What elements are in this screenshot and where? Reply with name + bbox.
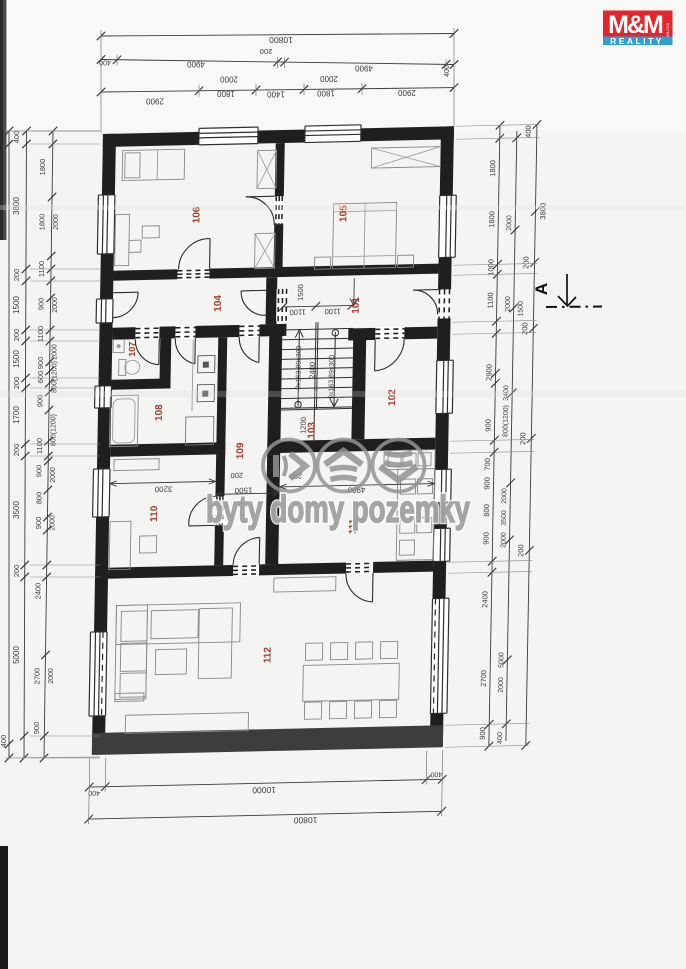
svg-text:1400: 1400 xyxy=(267,90,285,99)
svg-text:4900: 4900 xyxy=(187,60,205,69)
svg-text:1000: 1000 xyxy=(486,259,495,276)
svg-text:900: 900 xyxy=(32,722,41,735)
svg-text:1100: 1100 xyxy=(486,292,495,308)
svg-text:1500: 1500 xyxy=(296,284,305,301)
svg-text:200: 200 xyxy=(12,444,21,457)
svg-text:800: 800 xyxy=(34,492,43,505)
svg-text:M&M: M&M xyxy=(608,11,663,39)
svg-text:3500: 3500 xyxy=(501,510,508,526)
svg-text:2000: 2000 xyxy=(498,677,505,693)
svg-text:200: 200 xyxy=(516,544,525,557)
svg-text:3500: 3500 xyxy=(12,501,21,519)
svg-text:200: 200 xyxy=(518,432,527,445)
svg-text:1800: 1800 xyxy=(488,160,497,177)
svg-text:5000: 5000 xyxy=(12,646,21,664)
svg-text:1100: 1100 xyxy=(325,307,341,316)
svg-text:108: 108 xyxy=(154,404,165,421)
svg-text:900: 900 xyxy=(34,517,43,530)
svg-text:900: 900 xyxy=(36,357,45,370)
svg-text:2400: 2400 xyxy=(308,362,317,379)
svg-text:2000: 2000 xyxy=(52,297,59,313)
svg-text:900: 900 xyxy=(481,532,490,545)
svg-text:400: 400 xyxy=(430,770,442,777)
svg-text:400: 400 xyxy=(524,125,533,138)
svg-text:110: 110 xyxy=(149,505,160,522)
svg-text:400: 400 xyxy=(12,131,21,144)
svg-text:600: 600 xyxy=(36,371,45,384)
svg-text:200: 200 xyxy=(520,322,529,335)
svg-text:REALITY: REALITY xyxy=(610,36,664,46)
svg-text:400: 400 xyxy=(444,65,451,77)
svg-text:400: 400 xyxy=(0,735,8,748)
svg-text:800(1200): 800(1200) xyxy=(502,405,510,437)
svg-text:900: 900 xyxy=(483,419,492,432)
svg-text:200: 200 xyxy=(12,565,21,578)
svg-text:3200: 3200 xyxy=(154,484,173,493)
svg-text:2000: 2000 xyxy=(500,532,507,548)
svg-text:112: 112 xyxy=(262,647,273,664)
svg-text:2000: 2000 xyxy=(320,74,338,83)
svg-text:2900: 2900 xyxy=(398,88,416,97)
svg-text:104: 104 xyxy=(213,294,224,311)
svg-text:9x163,89x300: 9x163,89x300 xyxy=(295,345,303,389)
svg-text:700: 700 xyxy=(483,458,492,471)
svg-text:900: 900 xyxy=(482,477,491,490)
svg-text:200: 200 xyxy=(521,256,530,269)
svg-text:2000: 2000 xyxy=(501,488,508,504)
svg-text:1500: 1500 xyxy=(518,301,525,317)
svg-text:1800: 1800 xyxy=(317,89,335,98)
svg-text:A: A xyxy=(532,283,551,295)
svg-text:2000: 2000 xyxy=(52,344,59,360)
svg-text:10800: 10800 xyxy=(293,815,317,826)
svg-text:103: 103 xyxy=(306,421,317,438)
svg-text:1800: 1800 xyxy=(217,89,235,98)
svg-text:1500: 1500 xyxy=(12,296,21,314)
svg-text:1800: 1800 xyxy=(38,159,47,176)
svg-text:2000: 2000 xyxy=(50,515,57,531)
svg-text:2000: 2000 xyxy=(506,215,513,231)
svg-text:200: 200 xyxy=(260,47,273,56)
svg-text:1100: 1100 xyxy=(35,438,44,454)
svg-text:200: 200 xyxy=(230,471,243,480)
svg-text:2400: 2400 xyxy=(33,583,42,600)
svg-text:4900: 4900 xyxy=(355,64,373,73)
svg-text:1800: 1800 xyxy=(38,214,47,231)
svg-text:byty domy pozemky: byty domy pozemky xyxy=(206,489,470,531)
svg-text:2900: 2900 xyxy=(484,364,493,381)
svg-text:109: 109 xyxy=(235,442,246,459)
svg-text:2000: 2000 xyxy=(220,75,238,84)
svg-text:2400: 2400 xyxy=(480,591,489,608)
svg-text:1100: 1100 xyxy=(36,326,45,342)
svg-text:900: 900 xyxy=(478,727,487,740)
svg-text:10800: 10800 xyxy=(269,35,293,45)
svg-text:HOLDING: HOLDING xyxy=(666,22,670,37)
svg-text:900: 900 xyxy=(37,298,46,311)
svg-text:5000: 5000 xyxy=(498,652,505,668)
svg-text:400: 400 xyxy=(88,789,100,796)
svg-text:400: 400 xyxy=(497,732,504,744)
svg-text:200: 200 xyxy=(12,269,21,282)
svg-text:2000: 2000 xyxy=(50,467,57,483)
svg-text:10000: 10000 xyxy=(252,785,276,796)
svg-text:900: 900 xyxy=(35,465,44,478)
svg-text:2000: 2000 xyxy=(505,296,512,312)
svg-text:101: 101 xyxy=(351,296,362,313)
svg-text:2000: 2000 xyxy=(53,214,60,230)
svg-text:107: 107 xyxy=(127,342,137,357)
svg-text:800(1200): 800(1200) xyxy=(51,414,58,446)
svg-text:1800: 1800 xyxy=(487,211,496,228)
svg-text:2700: 2700 xyxy=(479,670,488,687)
svg-text:2000: 2000 xyxy=(48,668,55,684)
svg-text:2700: 2700 xyxy=(32,668,41,685)
svg-text:800: 800 xyxy=(482,504,491,517)
svg-text:200: 200 xyxy=(12,329,21,342)
svg-text:2900: 2900 xyxy=(146,97,164,106)
svg-text:1100: 1100 xyxy=(290,307,306,316)
svg-text:1700: 1700 xyxy=(12,406,21,424)
svg-text:200: 200 xyxy=(12,377,21,390)
svg-text:1500: 1500 xyxy=(12,350,21,368)
